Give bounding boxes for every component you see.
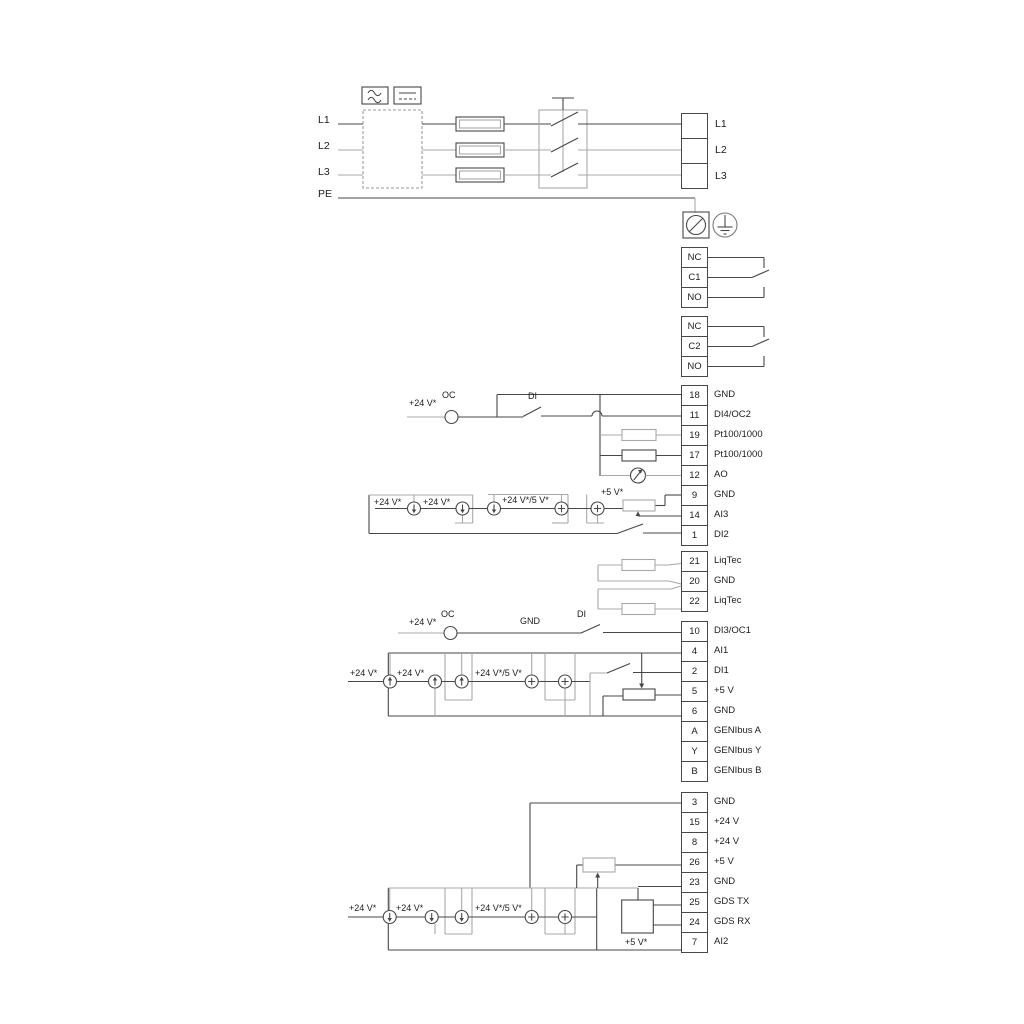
terminal-cell-14: 14 xyxy=(681,505,708,526)
terminal-cell-17: 17 xyxy=(681,445,708,466)
di-switch-icon xyxy=(523,407,541,417)
oc-circle-icon xyxy=(445,411,458,424)
terminal-label: AI2 xyxy=(714,936,728,948)
di2-switch-icon xyxy=(617,524,643,534)
terminal-cell-a: A xyxy=(681,721,708,742)
terminal-cell-23: 23 xyxy=(681,872,708,893)
terminal-cell-5: 5 xyxy=(681,681,708,702)
terminal-label: AO xyxy=(714,469,728,481)
annotation-oc: OC xyxy=(442,390,456,400)
annotation-24v: +24 V* xyxy=(350,668,377,678)
terminal-cell-21: 21 xyxy=(681,551,708,572)
terminal-cell-1: 1 xyxy=(681,525,708,546)
input-label-l3: L3 xyxy=(318,166,330,178)
annotation-di: DI xyxy=(577,609,586,619)
terminal-cell-9: 9 xyxy=(681,485,708,506)
fuse-icon xyxy=(456,117,504,182)
terminal-label: AI1 xyxy=(714,645,728,657)
output-label-l1: L1 xyxy=(715,118,727,130)
terminal-label: GENIbus A xyxy=(714,725,761,737)
ao-meter-icon xyxy=(600,468,681,483)
relay1-terminal-nc: NC xyxy=(681,247,708,268)
dc-icon xyxy=(394,87,421,104)
terminal-cell-4: 4 xyxy=(681,641,708,662)
liqtec-sensor-icon xyxy=(598,560,681,615)
terminal-label: LiqTec xyxy=(714,555,741,567)
pt100-resistor-icon xyxy=(600,430,681,462)
terminal-label: GND xyxy=(714,489,735,501)
relay1-contact-icon xyxy=(707,258,769,298)
current-source-down-icon xyxy=(408,502,421,515)
terminal-cell-24: 24 xyxy=(681,912,708,933)
annotation-5v: +5 V* xyxy=(625,937,647,947)
annotation-24v-5v: +24 V*/5 V* xyxy=(475,668,522,678)
ai2-row-wires xyxy=(348,803,681,950)
terminal-label: GDS RX xyxy=(714,916,750,928)
screw-terminal-icon xyxy=(683,212,709,238)
gds-sensor-box xyxy=(622,900,654,933)
terminal-cell-2: 2 xyxy=(681,661,708,682)
terminal-label: +24 V xyxy=(714,836,739,848)
terminal-label: GND xyxy=(714,389,735,401)
mains-input-wires xyxy=(338,124,695,212)
di-switch-icon xyxy=(581,625,600,634)
output-terminal-l1 xyxy=(681,113,708,139)
annotation-24v: +24 V* xyxy=(349,903,376,913)
terminal-label: +5 V xyxy=(714,856,734,868)
output-label-l3: L3 xyxy=(715,170,727,182)
terminal-cell-b: B xyxy=(681,761,708,782)
voltage-source-plus-icon xyxy=(559,911,572,924)
terminal-label: DI1 xyxy=(714,665,729,677)
terminal-cell-18: 18 xyxy=(681,385,708,406)
voltage-source-plus-icon xyxy=(591,502,604,515)
voltage-source-plus-icon xyxy=(559,675,572,688)
di4-row-wires xyxy=(407,395,681,477)
input-label-l2: L2 xyxy=(318,140,330,152)
relay1-terminal-no: NO xyxy=(681,287,708,308)
terminal-cell-26: 26 xyxy=(681,852,708,873)
terminal-label: DI3/OC1 xyxy=(714,625,751,637)
current-source-down-icon xyxy=(383,911,396,924)
filter-to-fuse-wires xyxy=(422,124,456,175)
relay1-terminal-c1: C1 xyxy=(681,267,708,288)
terminal-cell-10: 10 xyxy=(681,621,708,642)
ai1-potentiometer-icon xyxy=(623,689,655,700)
input-label-l1: L1 xyxy=(318,114,330,126)
output-label-l2: L2 xyxy=(715,144,727,156)
annotation-24v: +24 V* xyxy=(409,398,436,408)
schematic-lines xyxy=(0,0,1024,1024)
relay2-contact-icon xyxy=(707,327,769,367)
terminal-cell-6: 6 xyxy=(681,701,708,722)
terminal-cell-11: 11 xyxy=(681,405,708,426)
annotation-5v: +5 V* xyxy=(601,487,623,497)
terminal-cell-15: 15 xyxy=(681,812,708,833)
terminal-cell-12: 12 xyxy=(681,465,708,486)
terminal-cell-22: 22 xyxy=(681,591,708,612)
annotation-24v: +24 V* xyxy=(397,668,424,678)
current-source-up-icon xyxy=(384,675,397,688)
terminal-cell-y: Y xyxy=(681,741,708,762)
terminal-label: GENIbus B xyxy=(714,765,762,777)
terminal-cell-20: 20 xyxy=(681,571,708,592)
oc-circle-icon xyxy=(444,627,457,640)
current-source-down-icon xyxy=(425,911,438,924)
terminal-label: Pt100/1000 xyxy=(714,429,763,441)
annotation-24v: +24 V* xyxy=(396,903,423,913)
current-source-up-icon xyxy=(429,675,442,688)
annotation-24v: +24 V* xyxy=(374,497,401,507)
relay2-terminal-nc: NC xyxy=(681,316,708,337)
earth-ground-icon xyxy=(713,213,737,237)
output-terminal-l3 xyxy=(681,163,708,189)
terminal-label: LiqTec xyxy=(714,595,741,607)
terminal-label: +24 V xyxy=(714,816,739,828)
wiring-diagram: L1 L2 L3 PE L1 L2 L3 NC C1 NO NC C2 NO 1… xyxy=(0,0,1024,1024)
terminal-label: GENIbus Y xyxy=(714,745,761,757)
current-source-down-icon xyxy=(456,502,469,515)
terminal-label: AI3 xyxy=(714,509,728,521)
voltage-source-plus-icon xyxy=(525,675,538,688)
terminal-cell-19: 19 xyxy=(681,425,708,446)
terminal-label: GND xyxy=(714,705,735,717)
relay2-terminal-no: NO xyxy=(681,356,708,377)
relay2-terminal-c2: C2 xyxy=(681,336,708,357)
ai2-potentiometer-icon xyxy=(583,858,615,872)
terminal-cell-8: 8 xyxy=(681,832,708,853)
terminal-label: DI2 xyxy=(714,529,729,541)
annotation-24v: +24 V* xyxy=(409,617,436,627)
switch-to-output-wires xyxy=(578,124,681,175)
input-label-pe: PE xyxy=(318,188,332,200)
di3-row-wires xyxy=(398,625,681,640)
ai3-potentiometer-icon xyxy=(623,500,681,516)
ai1-row-wires xyxy=(348,653,681,716)
filter-box xyxy=(363,110,422,188)
current-source-up-icon xyxy=(455,675,468,688)
annotation-oc: OC xyxy=(441,609,455,619)
terminal-label: GND xyxy=(714,796,735,808)
terminal-label: DI4/OC2 xyxy=(714,409,751,421)
output-terminal-l2 xyxy=(681,138,708,164)
current-source-down-icon xyxy=(455,911,468,924)
terminal-label: GDS TX xyxy=(714,896,749,908)
annotation-24v-5v: +24 V*/5 V* xyxy=(502,495,549,505)
ac-icon xyxy=(362,87,388,104)
terminal-cell-25: 25 xyxy=(681,892,708,913)
terminal-cell-7: 7 xyxy=(681,932,708,953)
annotation-gnd: GND xyxy=(520,616,540,626)
fuse-to-switch-wires xyxy=(504,124,551,175)
annotation-24v: +24 V* xyxy=(423,497,450,507)
voltage-source-plus-icon xyxy=(555,502,568,515)
annotation-24v-5v: +24 V*/5 V* xyxy=(475,903,522,913)
annotation-di: DI xyxy=(528,391,537,401)
di1-switch-icon xyxy=(607,664,630,674)
current-source-down-icon xyxy=(488,502,501,515)
terminal-label: GND xyxy=(714,876,735,888)
terminal-label: Pt100/1000 xyxy=(714,449,763,461)
voltage-source-plus-icon xyxy=(525,911,538,924)
terminal-label: GND xyxy=(714,575,735,587)
terminal-cell-3: 3 xyxy=(681,792,708,813)
terminal-label: +5 V xyxy=(714,685,734,697)
